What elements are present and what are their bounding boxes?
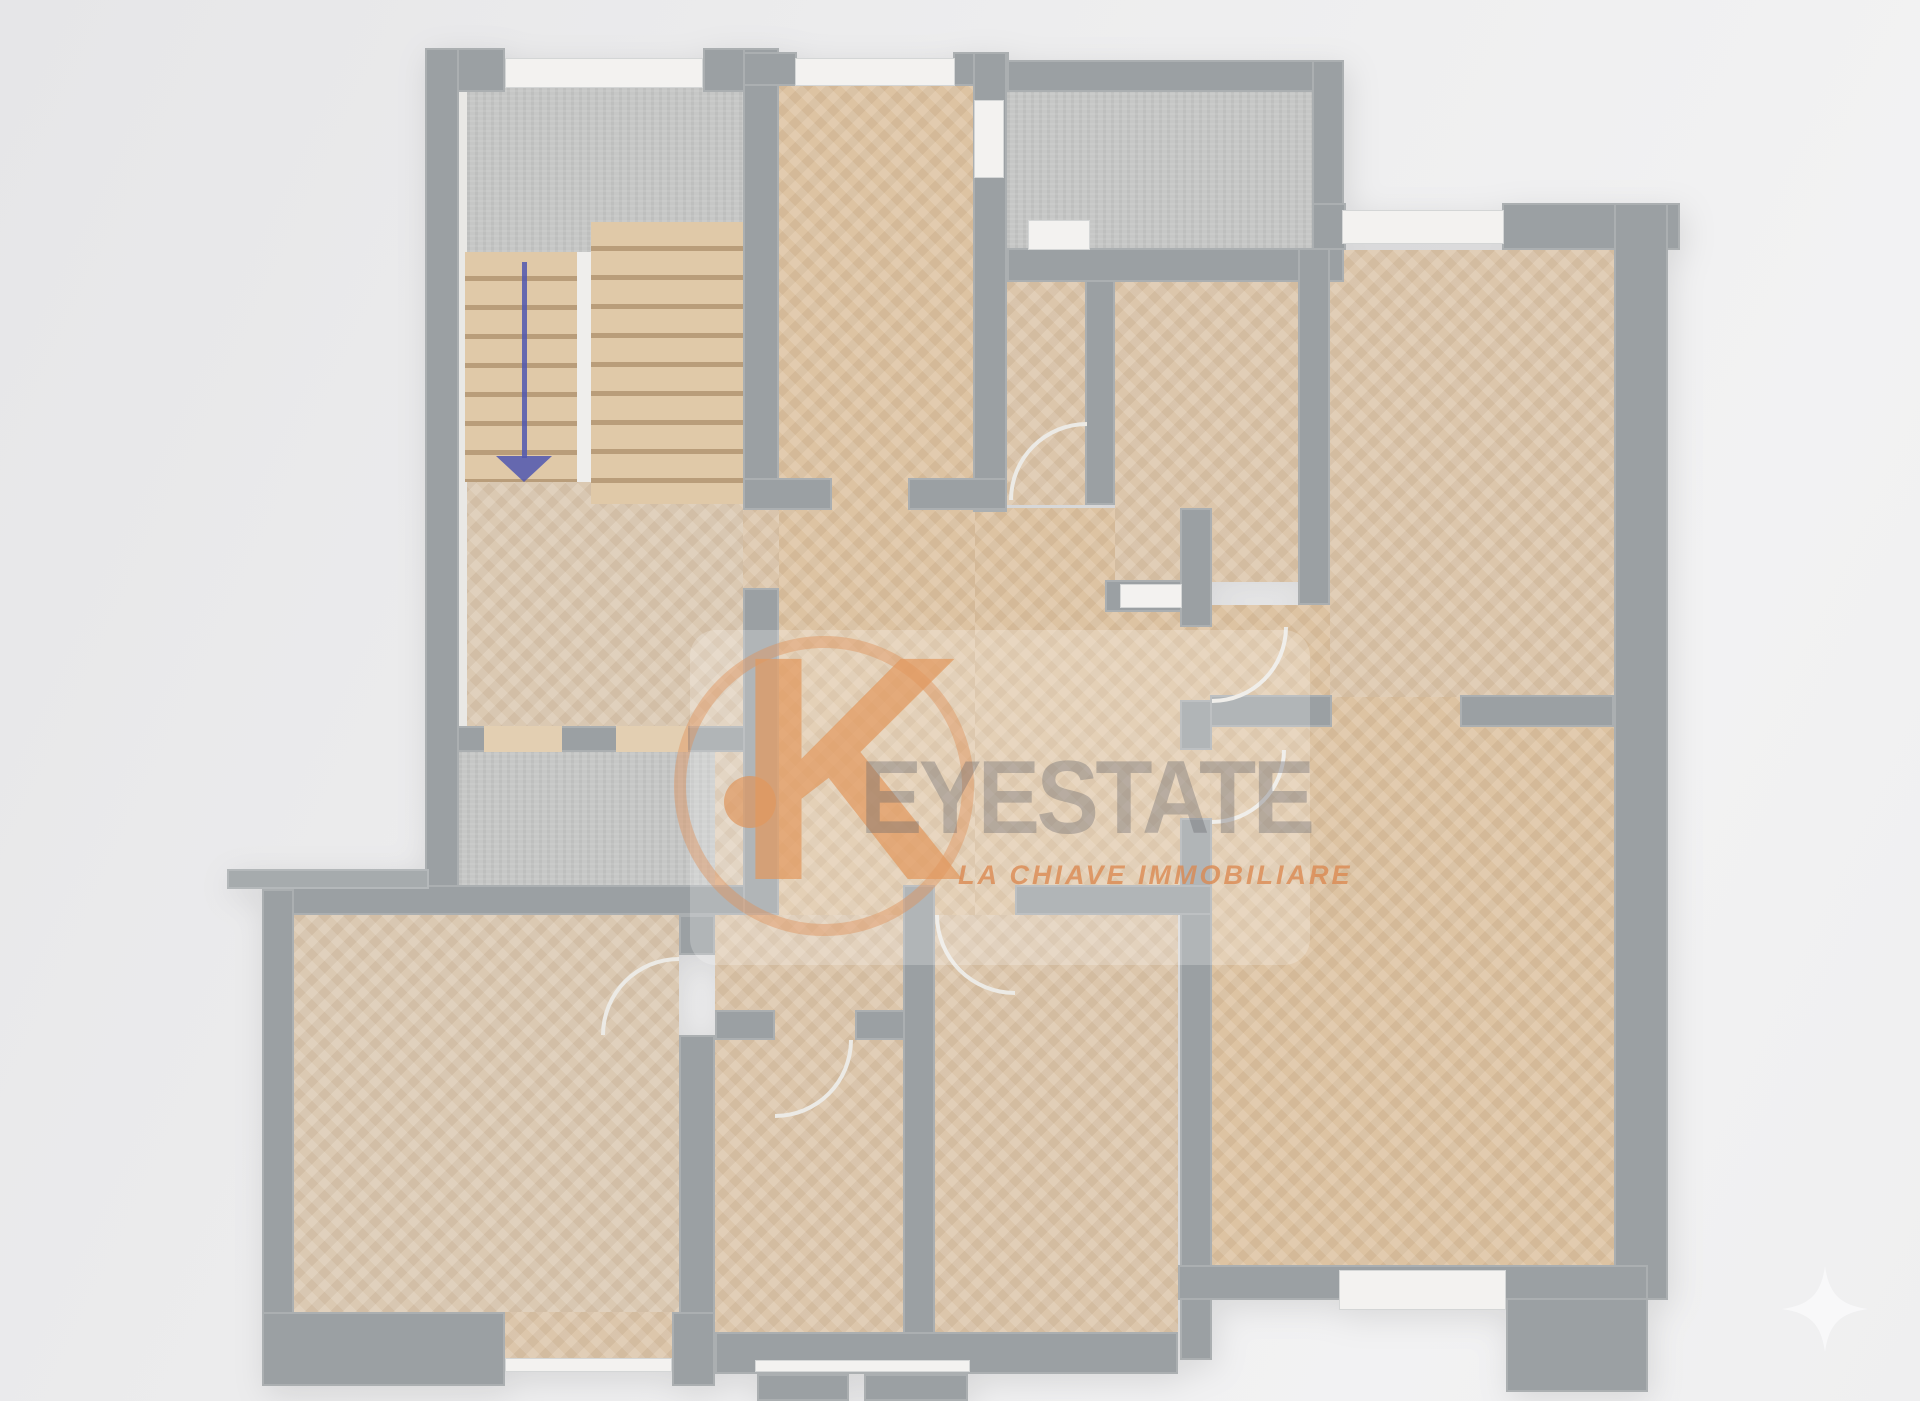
wall-segment: [908, 478, 1007, 510]
wall-segment: [743, 52, 797, 86]
staircase-right-flight: [591, 222, 745, 504]
wall-segment: [1298, 248, 1330, 605]
wall-segment: [715, 1010, 775, 1040]
wall-segment: [1506, 1298, 1648, 1392]
staircase-divider: [577, 252, 591, 482]
wall-segment: [672, 1312, 715, 1386]
window-sill: [755, 1360, 970, 1372]
wall-segment: [1460, 695, 1614, 727]
wall-segment: [425, 48, 459, 915]
wall-segment: [903, 885, 935, 1335]
floor-window-threshold: [505, 1312, 672, 1358]
wall-segment: [679, 915, 715, 955]
floor-plan: K EYESTATE LA CHIAVE IMMOBILIARE: [0, 0, 1920, 1401]
staircase-left-flight: [465, 252, 577, 482]
window-sill: [795, 58, 955, 86]
wall-ledge: [227, 869, 429, 889]
wall-segment: [1085, 280, 1115, 505]
window-sill: [1120, 584, 1182, 608]
window-pier: [864, 1374, 968, 1401]
window-sill: [505, 1358, 672, 1372]
sparkle-icon: [1782, 1266, 1868, 1352]
window-sill: [505, 58, 703, 88]
wall-segment: [262, 885, 745, 915]
wall-segment: [1015, 885, 1212, 915]
window-sill: [1342, 210, 1504, 244]
wall-segment: [743, 478, 832, 510]
wall-segment: [262, 1312, 505, 1386]
floor-plan-screenshot: K EYESTATE LA CHIAVE IMMOBILIARE: [0, 0, 1920, 1401]
floor-bedroom-bottom-left: [294, 915, 679, 1312]
wall-segment: [1180, 508, 1212, 627]
door-threshold: [616, 726, 688, 752]
wall-segment: [743, 48, 779, 488]
floor-bottom-middle-rooms: [715, 915, 1178, 1332]
window-pier: [757, 1374, 849, 1401]
courtyard-concrete: [459, 752, 715, 885]
wall-segment: [1007, 248, 1344, 282]
window-sill: [1339, 1270, 1506, 1310]
wall-segment: [743, 588, 779, 915]
floor-bedroom-top-right: [1330, 250, 1614, 697]
wall-segment: [1614, 203, 1668, 1300]
wall-segment: [1312, 203, 1346, 250]
window-sill: [974, 100, 1004, 178]
door-threshold: [484, 726, 562, 752]
window-sill: [1028, 220, 1090, 250]
wall-segment: [855, 1010, 905, 1040]
wall-segment: [1180, 700, 1212, 750]
stairs-down-arrow-line: [522, 262, 527, 458]
wall-segment: [703, 48, 747, 92]
stairs-down-arrow-icon: [496, 456, 552, 482]
wall-segment: [1007, 60, 1344, 92]
